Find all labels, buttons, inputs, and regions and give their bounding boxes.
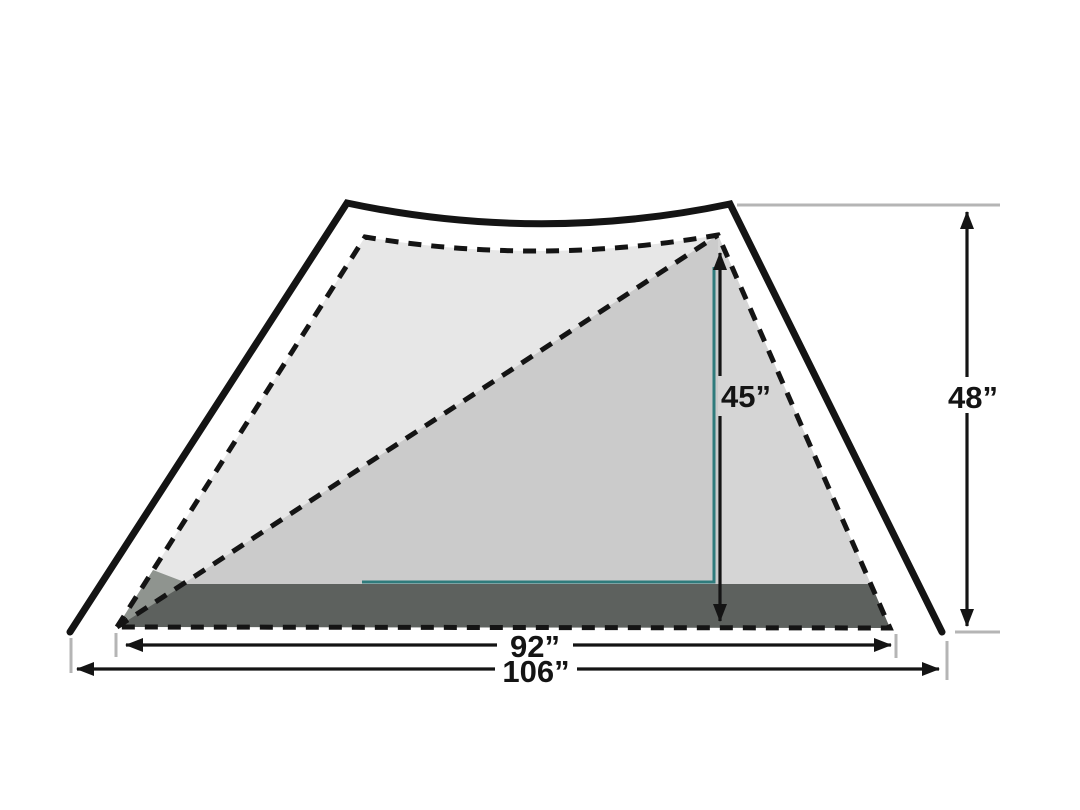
inner-height-label: 45” — [721, 379, 771, 414]
diagram-canvas: 45” 48” 92” 106” — [0, 0, 1080, 810]
outer-height-label: 48” — [948, 380, 998, 415]
tent-floor — [117, 584, 890, 628]
outer-width-label: 106” — [502, 654, 569, 689]
tent-dimension-diagram: 45” 48” 92” 106” — [0, 0, 1080, 810]
